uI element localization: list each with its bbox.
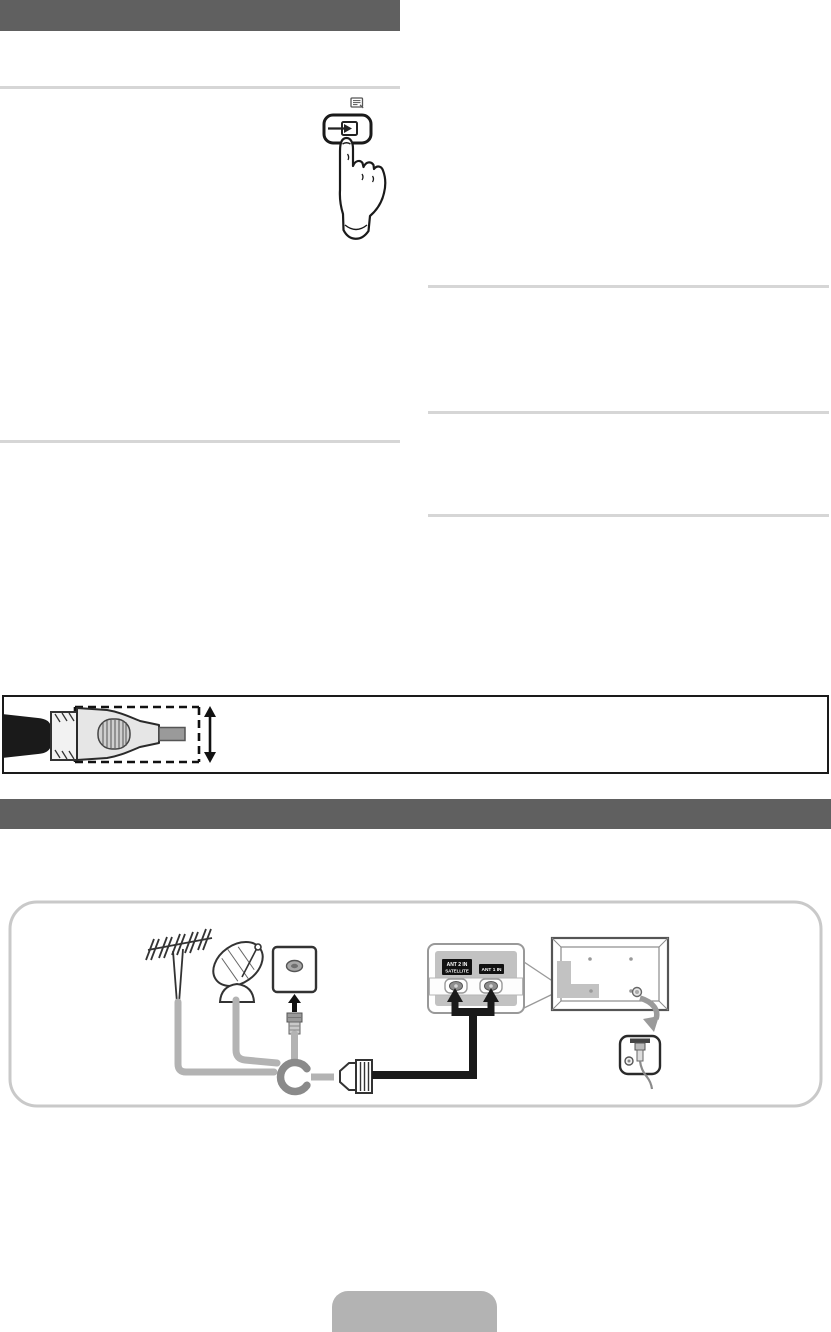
- divider-rule: [0, 86, 400, 89]
- divider-rule: [428, 411, 829, 414]
- cable-ferrule: [51, 712, 77, 760]
- dimension-arrow-icon: [204, 706, 216, 763]
- svg-text:SATELLITE: SATELLITE: [445, 969, 469, 974]
- svg-text:ANT 2 IN: ANT 2 IN: [447, 962, 468, 968]
- manual-page: ANT 2 IN SATELLITE ANT 1 IN: [0, 0, 831, 1332]
- antenna-ports-panel: ANT 2 IN SATELLITE ANT 1 IN: [428, 944, 524, 1013]
- ant2-port-label: ANT 2 IN SATELLITE: [442, 959, 472, 975]
- section-header-bar-1: [0, 0, 400, 31]
- divider-rule: [0, 440, 400, 443]
- tv-back-panel: [552, 938, 668, 1010]
- svg-text:ANT 1 IN: ANT 1 IN: [482, 967, 503, 973]
- cable-connector-figure: [2, 695, 232, 774]
- ant1-port-label: ANT 1 IN: [479, 964, 504, 974]
- divider-rule: [428, 514, 829, 517]
- section-header-bar-2: [0, 799, 831, 829]
- divider-rule: [428, 285, 829, 288]
- connector-grip: [98, 719, 130, 749]
- cable-body: [2, 714, 51, 758]
- connector-pin: [159, 728, 185, 741]
- antenna-connection-diagram: ANT 2 IN SATELLITE ANT 1 IN: [8, 900, 823, 1108]
- pressing-hand-icon: [340, 138, 385, 239]
- pressing-hand-illustration: [316, 94, 408, 246]
- wall-socket-icon: [273, 947, 316, 992]
- footer-page-tab: [332, 1291, 497, 1332]
